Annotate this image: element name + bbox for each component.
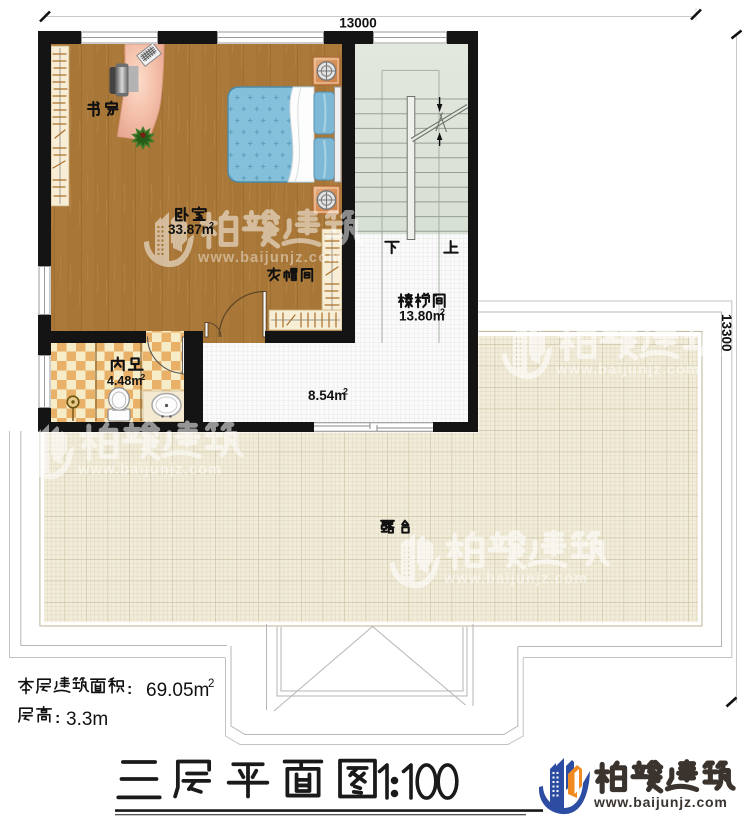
svg-text:8.54m: 8.54m — [308, 388, 346, 403]
svg-text:13300: 13300 — [719, 314, 734, 352]
svg-text::: : — [127, 681, 132, 698]
svg-text:3.3m: 3.3m — [66, 709, 108, 730]
svg-text:69.05m: 69.05m — [146, 680, 209, 701]
svg-text:www.baijunjz.com: www.baijunjz.com — [593, 794, 728, 810]
svg-text:13.80m: 13.80m — [399, 309, 445, 324]
svg-text:www.baijunjz.com: www.baijunjz.com — [555, 362, 700, 378]
svg-text:www.baijunjz.com: www.baijunjz.com — [197, 250, 342, 266]
svg-text:4.48m: 4.48m — [107, 374, 142, 388]
svg-text:2: 2 — [209, 221, 214, 231]
svg-text:13000: 13000 — [339, 16, 377, 31]
svg-text:www.baijunjz.com: www.baijunjz.com — [77, 462, 222, 478]
svg-text:33.87m: 33.87m — [168, 222, 214, 237]
svg-text:2: 2 — [208, 678, 214, 690]
svg-text:2: 2 — [440, 307, 445, 317]
svg-text:2: 2 — [141, 372, 146, 382]
svg-text:2: 2 — [343, 387, 348, 397]
svg-text:www.baijunjz.com: www.baijunjz.com — [443, 571, 588, 587]
svg-text::: : — [55, 710, 60, 727]
